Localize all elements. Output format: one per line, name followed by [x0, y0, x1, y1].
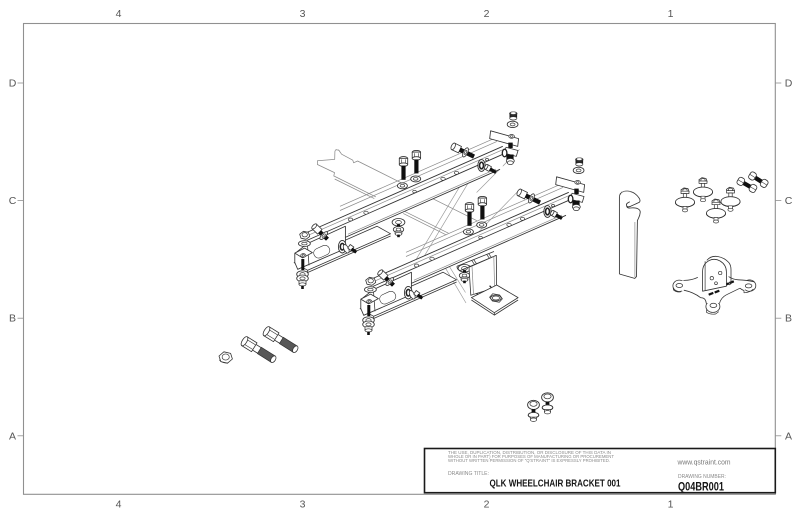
svg-text:QLK WHEELCHAIR BRACKET 001: QLK WHEELCHAIR BRACKET 001	[490, 479, 621, 490]
svg-text:3: 3	[300, 8, 306, 20]
svg-text:1: 1	[668, 8, 674, 20]
svg-text:C: C	[785, 195, 793, 207]
svg-text:A: A	[785, 430, 792, 442]
svg-text:A: A	[9, 430, 16, 442]
svg-text:Q04BR001: Q04BR001	[678, 481, 724, 493]
svg-text:www.qstraint.com: www.qstraint.com	[677, 457, 731, 466]
svg-text:DRAWING TITLE:: DRAWING TITLE:	[448, 471, 489, 477]
svg-text:1: 1	[668, 499, 674, 511]
svg-text:3: 3	[300, 499, 306, 511]
svg-text:B: B	[785, 313, 792, 325]
svg-text:B: B	[9, 313, 16, 325]
svg-text:2: 2	[484, 499, 490, 511]
svg-text:WITHOUT WRITTEN PERMISSION OF: WITHOUT WRITTEN PERMISSION OF "Q'STRAINT…	[448, 458, 610, 463]
svg-text:4: 4	[116, 499, 122, 511]
svg-text:C: C	[9, 195, 17, 207]
svg-text:2: 2	[484, 8, 490, 20]
svg-text:D: D	[785, 78, 793, 90]
svg-text:DRAWING NUMBER:: DRAWING NUMBER:	[678, 474, 726, 480]
svg-text:4: 4	[116, 8, 122, 20]
svg-text:D: D	[9, 78, 17, 90]
